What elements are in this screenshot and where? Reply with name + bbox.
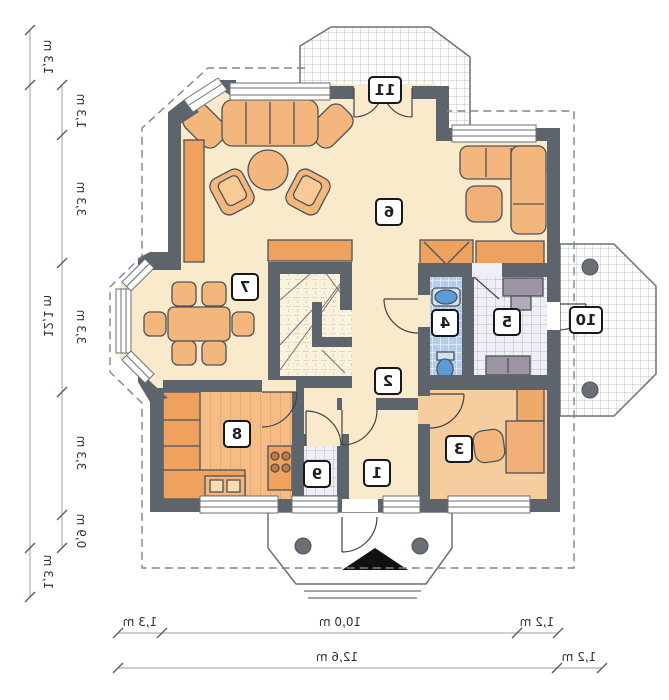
window bbox=[116, 289, 131, 353]
porch-column bbox=[295, 538, 311, 554]
window bbox=[452, 125, 536, 142]
room-number: 9 bbox=[312, 465, 322, 483]
coffee-table-square bbox=[466, 186, 502, 222]
room-number: 1 bbox=[372, 464, 382, 482]
window bbox=[230, 83, 330, 100]
coffee-table-round bbox=[248, 150, 288, 190]
porch-column bbox=[582, 382, 598, 398]
room-label-4: 4 bbox=[432, 310, 458, 336]
room-label-10: 10 bbox=[570, 307, 602, 333]
room-label-7: 7 bbox=[232, 274, 258, 300]
room-number: 10 bbox=[576, 311, 597, 329]
porch-column bbox=[582, 259, 598, 275]
room-label-2: 2 bbox=[375, 368, 401, 394]
desk-chair bbox=[472, 428, 506, 464]
room-number: 4 bbox=[440, 314, 450, 332]
room-label-11: 11 bbox=[369, 77, 401, 103]
room-number: 3 bbox=[454, 440, 464, 458]
sideboard-left-wall bbox=[184, 140, 204, 262]
room-number: 11 bbox=[375, 81, 396, 99]
dim-label: 0,9 m bbox=[74, 514, 88, 549]
room-label-6: 6 bbox=[376, 199, 402, 225]
dim-label: 1,3 m bbox=[41, 40, 55, 75]
floor-plan-canvas: 1 2 3 4 5 6 7 8 9 10 11 1,3 m 12,1 m 1, bbox=[0, 0, 669, 700]
room-number: 5 bbox=[502, 313, 512, 331]
dim-label: 1,2 m bbox=[520, 615, 555, 629]
dim-label: 10,0 m bbox=[319, 615, 361, 629]
room-number: 2 bbox=[383, 372, 393, 390]
dim-label: 12,6 m bbox=[316, 650, 358, 664]
dim-label: 3,3 m bbox=[74, 310, 88, 345]
sideboard bbox=[476, 241, 544, 264]
sideboard-stairs bbox=[268, 240, 352, 261]
window bbox=[292, 496, 338, 513]
window bbox=[383, 496, 420, 513]
room-number: 8 bbox=[232, 425, 242, 443]
room-number: 6 bbox=[384, 203, 394, 221]
dim-label: 1,3 m bbox=[74, 94, 88, 129]
window bbox=[200, 496, 278, 513]
dim-label: 12,1 m bbox=[41, 295, 55, 337]
dim-label: 3,3 m bbox=[74, 436, 88, 471]
room-number: 7 bbox=[240, 278, 250, 296]
dim-label: 1,2 m bbox=[562, 650, 597, 664]
room-label-8: 8 bbox=[224, 421, 250, 447]
dim-label: 1,3 m bbox=[41, 555, 55, 590]
dining-table bbox=[168, 307, 230, 341]
room-label-3: 3 bbox=[446, 436, 472, 462]
entry-porch bbox=[268, 512, 452, 598]
room-label-9: 9 bbox=[304, 461, 330, 487]
room-label-1: 1 bbox=[364, 460, 390, 486]
window bbox=[448, 496, 530, 513]
kitchen-sink bbox=[205, 476, 245, 496]
dim-label: 1,3 m bbox=[123, 615, 158, 629]
corner-sofa-left bbox=[179, 100, 357, 152]
floor-plan-page: 1 2 3 4 5 6 7 8 9 10 11 1,3 m 12,1 m 1, bbox=[0, 0, 669, 700]
room-label-5: 5 bbox=[494, 309, 520, 335]
porch-column bbox=[412, 538, 428, 554]
fireplace bbox=[420, 240, 473, 266]
dim-label: 3,3 m bbox=[74, 182, 88, 217]
